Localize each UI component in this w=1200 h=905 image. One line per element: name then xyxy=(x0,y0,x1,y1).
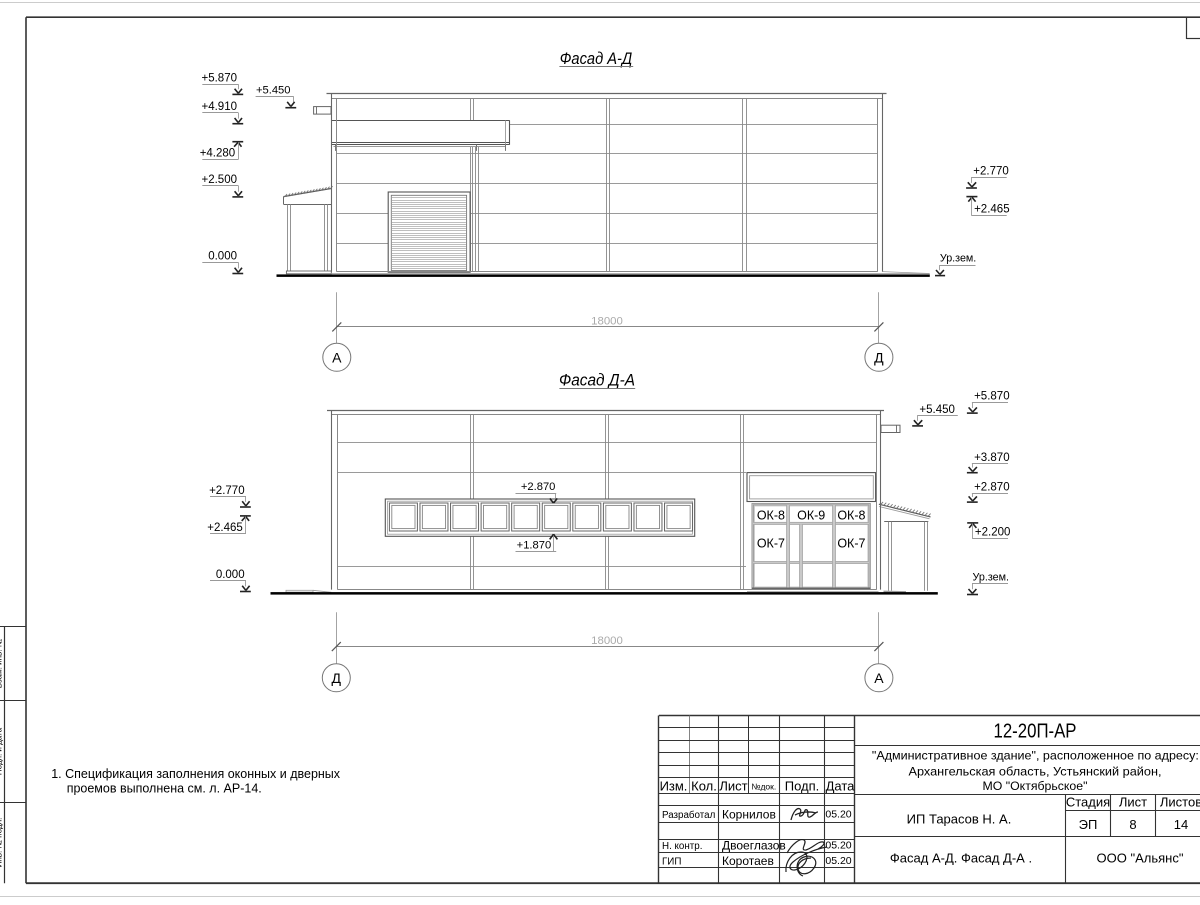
svg-text:+2.770: +2.770 xyxy=(209,485,245,497)
svg-text:14: 14 xyxy=(1174,817,1188,832)
svg-text:05.20: 05.20 xyxy=(825,855,851,867)
svg-text:Лист: Лист xyxy=(1119,794,1147,809)
svg-text:Фасад Д-А: Фасад Д-А xyxy=(559,371,635,390)
svg-text:Стадия: Стадия xyxy=(1066,794,1110,809)
svg-text:Двоеглазов: Двоеглазов xyxy=(722,839,786,853)
svg-text:Листов: Листов xyxy=(1160,794,1200,809)
svg-text:ОК-9: ОК-9 xyxy=(797,509,825,523)
svg-text:"Административное здание", рас: "Административное здание", расположенное… xyxy=(872,749,1199,763)
svg-text:+2.870: +2.870 xyxy=(974,481,1010,493)
svg-text:+2.465: +2.465 xyxy=(207,522,243,534)
svg-text:ГИП: ГИП xyxy=(662,856,681,867)
svg-text:ОК-7: ОК-7 xyxy=(837,537,865,551)
svg-text:Взам. инв. №: Взам. инв. № xyxy=(0,638,4,688)
svg-text:Д: Д xyxy=(874,349,884,365)
svg-text:ОК-7: ОК-7 xyxy=(757,537,785,551)
svg-text:+5.450: +5.450 xyxy=(256,85,291,97)
svg-text:12-20П-АР: 12-20П-АР xyxy=(994,721,1077,743)
svg-text:Н. контр.: Н. контр. xyxy=(662,841,702,852)
svg-text:+4.280: +4.280 xyxy=(200,148,236,160)
svg-text:ОК-8: ОК-8 xyxy=(757,509,785,523)
svg-text:№док.: №док. xyxy=(751,781,776,791)
svg-text:0.000: 0.000 xyxy=(208,251,237,263)
svg-text:Подп. и дата: Подп. и дата xyxy=(0,727,4,775)
svg-text:Ур.зем.: Ур.зем. xyxy=(973,571,1010,583)
svg-text:+5.870: +5.870 xyxy=(202,73,238,85)
svg-text:Дата: Дата xyxy=(826,778,856,793)
svg-text:18000: 18000 xyxy=(591,635,623,647)
svg-text:Д: Д xyxy=(332,670,342,686)
svg-text:05.20: 05.20 xyxy=(825,839,851,851)
svg-text:проемов выполнена см. л. АР-14: проемов выполнена см. л. АР-14. xyxy=(67,782,262,796)
svg-text:МО "Октябрьское": МО "Октябрьское" xyxy=(983,779,1088,793)
svg-text:18000: 18000 xyxy=(591,315,623,327)
svg-text:05.20: 05.20 xyxy=(825,809,851,821)
svg-text:Подп.: Подп. xyxy=(785,778,820,793)
svg-text:8: 8 xyxy=(1129,817,1136,832)
svg-text:ИП Тарасов Н. А.: ИП Тарасов Н. А. xyxy=(907,811,1012,826)
svg-text:+4.910: +4.910 xyxy=(202,101,238,113)
svg-text:Ур.зем.: Ур.зем. xyxy=(940,252,976,264)
svg-text:Фасад А-Д: Фасад А-Д xyxy=(560,49,633,68)
svg-text:+2.500: +2.500 xyxy=(202,174,238,186)
svg-text:+3.870: +3.870 xyxy=(974,452,1010,464)
svg-text:Фасад А-Д. Фасад Д-А .: Фасад А-Д. Фасад Д-А . xyxy=(890,850,1032,865)
svg-text:+5.450: +5.450 xyxy=(919,404,955,416)
svg-text:0.000: 0.000 xyxy=(216,569,245,581)
svg-text:Архангельская область, Устьянс: Архангельская область, Устьянский район, xyxy=(909,764,1162,778)
svg-text:А: А xyxy=(332,349,342,365)
svg-text:Лист: Лист xyxy=(719,778,747,793)
svg-text:+2.200: +2.200 xyxy=(975,526,1011,538)
svg-text:А: А xyxy=(874,670,884,686)
svg-text:ОК-8: ОК-8 xyxy=(837,509,865,523)
svg-text:Коротаев: Коротаев xyxy=(722,854,774,868)
svg-text:Кол.: Кол. xyxy=(691,778,717,793)
svg-text:+2.870: +2.870 xyxy=(521,481,556,493)
svg-text:Разработал: Разработал xyxy=(662,810,716,821)
svg-text:+5.870: +5.870 xyxy=(974,391,1010,403)
svg-text:+2.465: +2.465 xyxy=(974,203,1010,215)
svg-text:Инв. № подл.: Инв. № подл. xyxy=(0,818,4,868)
svg-text:1. Спецификация заполнения око: 1. Спецификация заполнения оконных и две… xyxy=(51,767,341,781)
svg-text:ООО "Альянс": ООО "Альянс" xyxy=(1097,850,1184,865)
svg-text:+1.870: +1.870 xyxy=(517,540,552,552)
svg-text:+2.770: +2.770 xyxy=(973,166,1009,178)
svg-text:Корнилов: Корнилов xyxy=(722,808,776,822)
svg-text:Изм.: Изм. xyxy=(660,778,688,793)
svg-text:ЭП: ЭП xyxy=(1079,817,1098,832)
